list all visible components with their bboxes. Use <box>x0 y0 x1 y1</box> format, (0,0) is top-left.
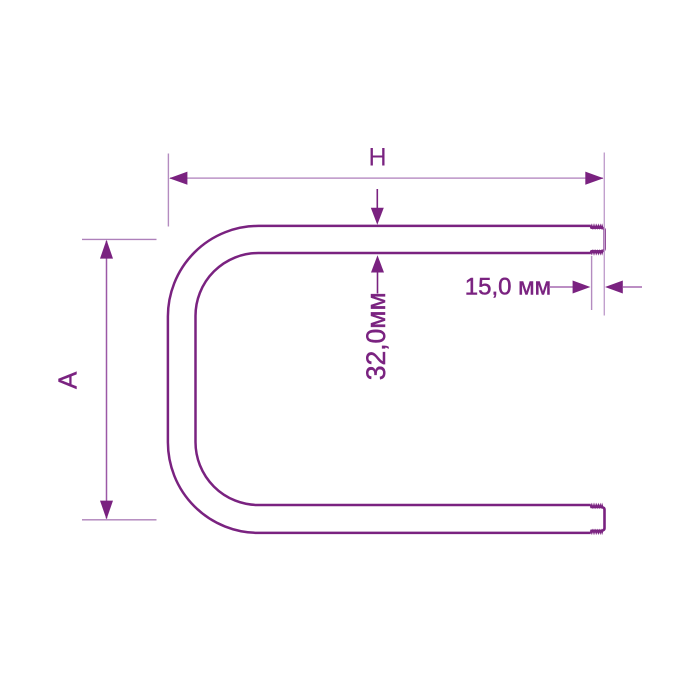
svg-text:A: A <box>53 371 83 389</box>
svg-text:15,0 мм: 15,0 мм <box>465 274 551 301</box>
svg-text:32,0мм: 32,0мм <box>361 292 391 380</box>
svg-text:H: H <box>368 144 386 172</box>
